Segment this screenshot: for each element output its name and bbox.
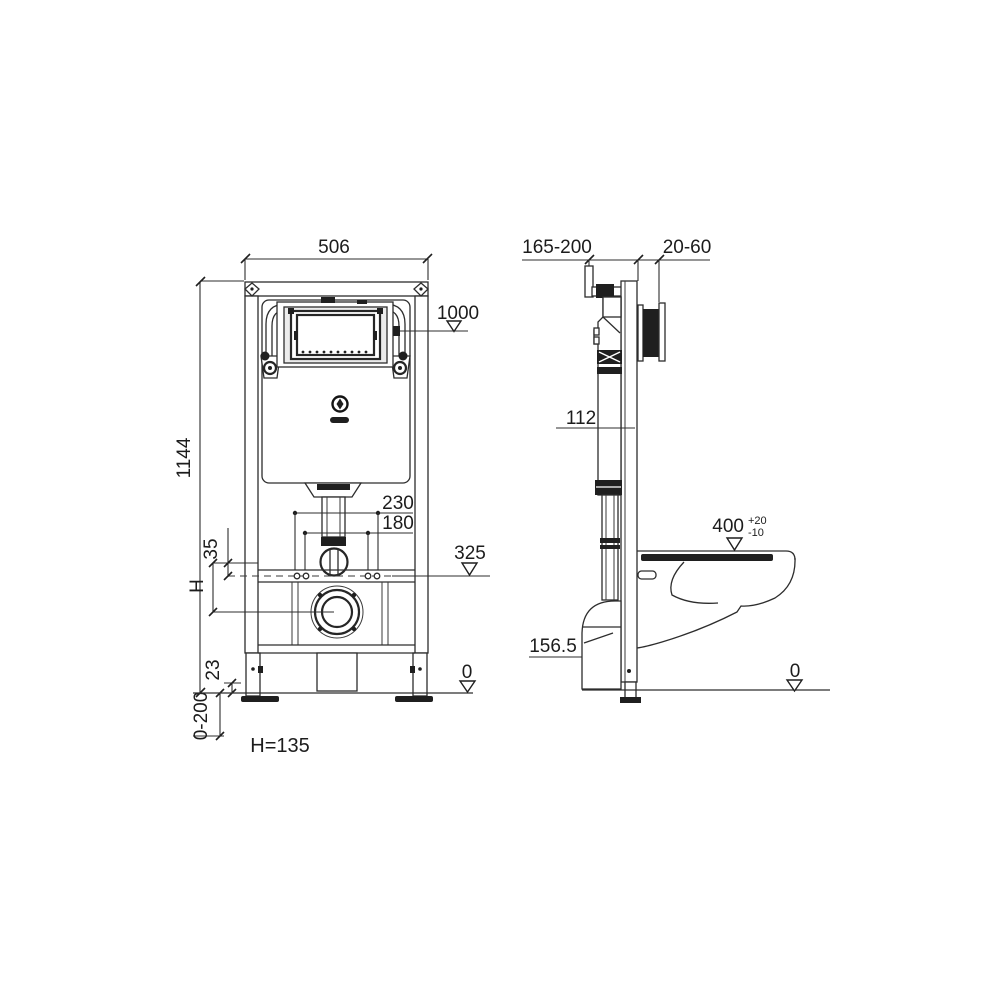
dim-label-165-200: 165-200 — [522, 237, 592, 258]
level-label-325: 325 — [454, 543, 486, 564]
toilet-bowl-profile — [637, 551, 795, 648]
mounting-hole — [374, 573, 380, 579]
frame-left-column — [245, 296, 258, 653]
mounting-hole — [365, 573, 371, 579]
level-400: 400 +20 -10 — [712, 515, 766, 550]
plate-top-tab — [321, 297, 335, 303]
level-label-400-minus: -10 — [748, 527, 764, 539]
level-triangle-icon — [460, 681, 475, 692]
left-foot-plate — [241, 696, 279, 702]
level-label-400-plus: +20 — [748, 515, 767, 527]
flush-plate-frame — [277, 297, 393, 367]
dim-label-23: 23 — [203, 659, 224, 680]
dim-label-230: 230 — [382, 493, 414, 514]
rail-foot-plate — [620, 697, 641, 703]
left-arm-bolt-icon — [261, 352, 270, 361]
installation-drawing-page: 506 1144 — [0, 0, 1000, 1000]
level-label-400: 400 — [712, 516, 744, 537]
right-arm-bolt-icon — [399, 352, 408, 361]
flush-valve — [321, 549, 348, 576]
level-triangle-icon — [462, 563, 477, 575]
dim-height-1144: 1144 — [174, 277, 244, 697]
front-view: 506 1144 — [174, 237, 490, 757]
bowl-inlet-stub — [638, 571, 656, 579]
left-leg — [246, 653, 260, 696]
flush-pipe — [322, 497, 345, 537]
technical-drawing: 506 1144 — [0, 0, 1000, 1000]
level-triangle-icon — [447, 321, 461, 332]
wall-bracket — [585, 260, 623, 298]
level-0-front: 0 — [460, 662, 475, 692]
level-label-0: 0 — [462, 662, 473, 683]
dim-outlet-156-5: 156.5 — [529, 636, 582, 657]
flush-pipe-side — [600, 495, 620, 600]
drain-support-box — [317, 653, 357, 691]
dim-label-0-200: 0-200 — [191, 692, 212, 741]
level-0-side: 0 — [787, 661, 802, 691]
dim-label-180: 180 — [382, 513, 414, 534]
dim-label-506: 506 — [318, 237, 350, 258]
flush-plate-side — [638, 303, 665, 361]
dim-label-35: 35 — [201, 538, 222, 559]
mounting-hole — [294, 573, 300, 579]
right-leg — [413, 653, 427, 696]
mounting-hole — [303, 573, 309, 579]
flush-pipe-assembly — [305, 483, 361, 576]
level-label-0-side: 0 — [790, 661, 801, 682]
right-foot-plate — [395, 696, 433, 702]
fill-valve — [603, 297, 621, 317]
dim-label-156-5: 156.5 — [529, 636, 577, 657]
cistern-side — [594, 297, 622, 495]
side-view: 165-200 20-60 — [522, 237, 830, 703]
frame-right-column — [415, 296, 428, 653]
dim-width-506: 506 — [241, 237, 432, 280]
drain-elbow — [582, 601, 621, 689]
level-325: 325 — [392, 543, 490, 576]
dim-label-1144: 1144 — [174, 437, 195, 478]
dim-label-20-60: 20-60 — [663, 237, 712, 258]
pipe-seal — [321, 537, 346, 546]
level-triangle-icon — [727, 538, 742, 550]
note-h-equals-135: H=135 — [250, 735, 310, 757]
frame-top-beam — [245, 282, 428, 296]
dim-adjust-0-200: 0-200 — [191, 689, 224, 740]
dim-label-112: 112 — [566, 408, 596, 429]
dim-label-h: H — [187, 579, 208, 593]
